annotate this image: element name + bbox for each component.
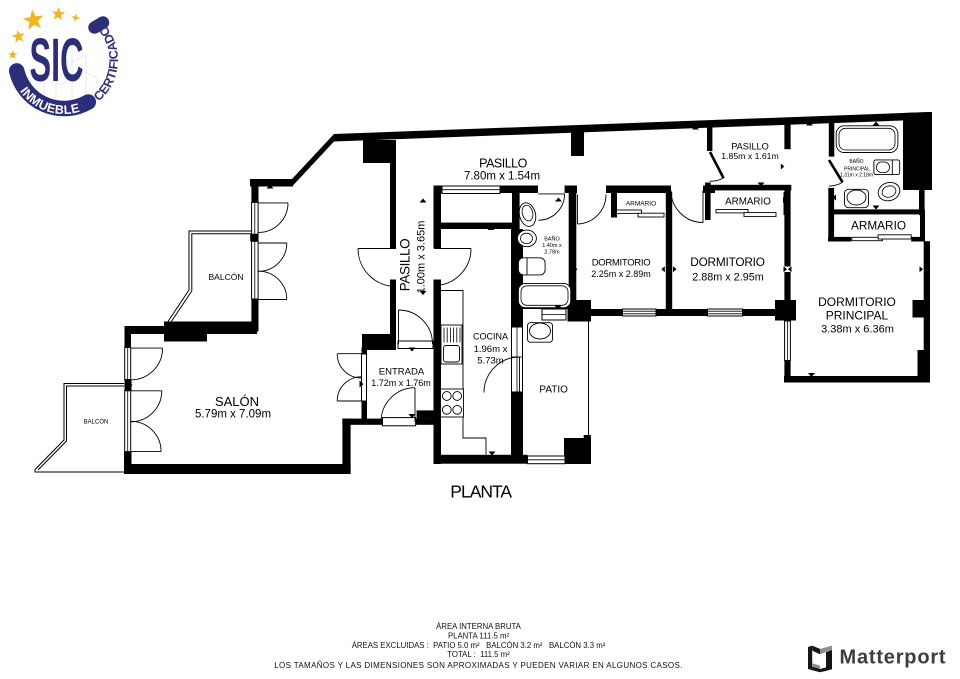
- svg-text:PRINCIPAL: PRINCIPAL: [844, 166, 870, 172]
- svg-text:PLANTA 111.5 m²: PLANTA 111.5 m²: [448, 632, 510, 641]
- svg-text:5.73m: 5.73m: [477, 356, 503, 367]
- svg-text:2.88m x 2.95m: 2.88m x 2.95m: [692, 272, 763, 284]
- svg-text:ARMARIO: ARMARIO: [626, 201, 656, 208]
- svg-text:DORMITORIO: DORMITORIO: [818, 295, 896, 309]
- svg-text:1.96m x: 1.96m x: [474, 344, 508, 355]
- svg-text:1.72m x 1.76m: 1.72m x 1.76m: [371, 378, 431, 388]
- svg-text:PASILLO: PASILLO: [479, 157, 527, 171]
- svg-text:COCINA: COCINA: [473, 332, 508, 342]
- svg-text:SIC: SIC: [30, 26, 84, 94]
- svg-text:PASILLO: PASILLO: [398, 239, 413, 291]
- svg-text:DORMITORIO: DORMITORIO: [690, 255, 764, 269]
- svg-text:5.79m x 7.09m: 5.79m x 7.09m: [195, 409, 271, 421]
- svg-text:PATIO: PATIO: [539, 385, 568, 396]
- svg-text:SALÓN: SALÓN: [215, 394, 259, 409]
- svg-text:3.38m x 6.36m: 3.38m x 6.36m: [821, 324, 894, 336]
- svg-text:PRINCIPAL: PRINCIPAL: [826, 309, 889, 323]
- svg-text:Matterport: Matterport: [840, 647, 947, 669]
- svg-text:1.31m x 2.18m: 1.31m x 2.18m: [840, 173, 873, 179]
- svg-text:BALCÓN: BALCÓN: [209, 272, 244, 282]
- svg-text:ARMARIO: ARMARIO: [725, 197, 771, 208]
- svg-text:DORMITORIO: DORMITORIO: [592, 258, 651, 269]
- svg-text:BALCÓN: BALCÓN: [84, 419, 109, 426]
- svg-text:1.85m x 1.61m: 1.85m x 1.61m: [721, 151, 778, 161]
- svg-text:BAÑO: BAÑO: [849, 158, 863, 165]
- svg-text:TOTAL : 111.5 m²: TOTAL : 111.5 m²: [447, 650, 510, 659]
- svg-text:PASILLO: PASILLO: [731, 142, 769, 152]
- svg-text:1.40m x: 1.40m x: [542, 243, 562, 249]
- svg-text:2.78m: 2.78m: [544, 250, 560, 256]
- svg-text:ÁREA INTERNA BRUTA: ÁREA INTERNA BRUTA: [436, 622, 522, 631]
- svg-text:ÁREAS EXCLUIDAS : PATIO 5.0 m: ÁREAS EXCLUIDAS : PATIO 5.0 m² BALCÓN 3.…: [352, 641, 606, 650]
- svg-text:PLANTA: PLANTA: [450, 482, 512, 502]
- svg-text:BAÑO: BAÑO: [544, 236, 560, 243]
- svg-text:2.25m x 2.89m: 2.25m x 2.89m: [591, 269, 651, 279]
- svg-text:LOS TAMAÑOS Y LAS DIMENSIONES: LOS TAMAÑOS Y LAS DIMENSIONES SON APROXI…: [274, 661, 683, 670]
- svg-text:7.80m x 1.54m: 7.80m x 1.54m: [464, 171, 540, 183]
- svg-text:ARMARIO: ARMARIO: [851, 219, 906, 233]
- svg-text:ENTRADA: ENTRADA: [379, 367, 425, 378]
- svg-text:1.00m x 3.65m: 1.00m x 3.65m: [416, 221, 428, 294]
